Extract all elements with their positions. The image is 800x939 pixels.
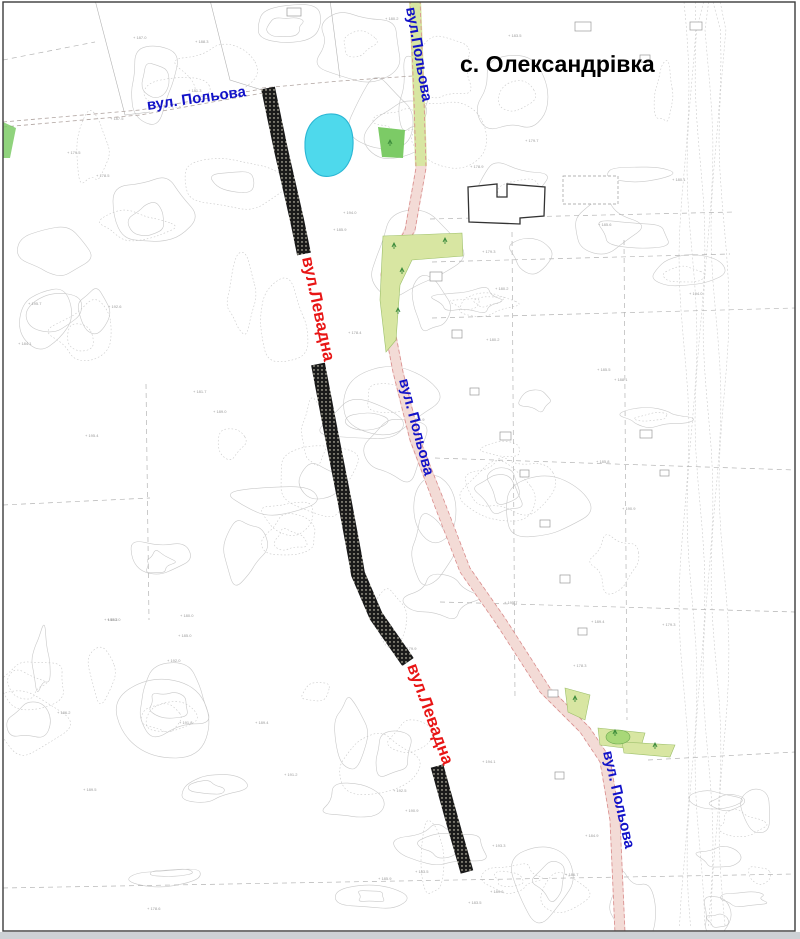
spot-height-mark: + 192.5 [393,788,407,793]
building [560,575,570,583]
contour-line [721,892,767,907]
contour-line [345,413,388,430]
parcel-line [432,308,795,318]
contour-line [146,550,175,572]
contour-line [335,697,368,769]
contour-line [78,289,110,334]
spot-height-mark: + 191.2 [284,772,298,777]
spot-height-mark: + 193.3 [492,843,506,848]
contour-line [140,663,209,737]
contour-line [116,679,209,758]
contour-line [317,13,400,82]
contour-line [32,625,50,692]
contour-line [261,502,312,535]
contour-line [0,691,71,755]
spot-height-mark: + 183.5 [508,33,522,38]
contour-line [261,514,315,555]
spot-height-mark: + 178.4 [348,330,362,335]
contour-line [654,61,673,122]
spot-height-mark: + 181.7 [193,389,207,394]
parcel-line [624,240,627,720]
contour-line [511,847,573,923]
spot-height-mark: + 189.0 [213,409,227,414]
contour-line [653,255,725,286]
tree-cluster [606,730,630,744]
spot-height-mark: + 179.3 [662,622,676,627]
contour-line [267,18,304,37]
contour-line [302,683,329,701]
spot-height-mark: + 188.3 [195,39,209,44]
spot-height-mark: + 189.4 [255,720,269,725]
parcel-line [95,0,150,115]
spot-height-mark: + 194.1 [482,759,496,764]
spot-height-mark: + 178.6 [147,906,161,911]
spot-height-mark: + 180.2 [385,16,399,21]
contour-line [663,266,705,282]
spot-height-mark: + 179.3 [482,249,496,254]
building [578,628,587,635]
building [555,772,564,779]
map-title: с. Олександрівка [460,51,655,77]
spot-height-mark: + 194.0 [343,210,357,215]
building [540,520,550,527]
contour-line [711,2,721,926]
field-road-edge [262,76,413,88]
building [520,470,529,477]
contour-line [741,789,770,833]
contour-line [498,81,535,111]
spot-height-mark: + 185.9 [378,876,392,881]
contour-line [224,521,268,586]
contour-line [620,407,694,427]
spot-height-mark: + 178.3 [573,663,587,668]
street-label-polova-middle: вул. Польова [395,377,437,478]
pond [305,114,353,176]
spot-height-mark: + 179.5 [67,150,81,155]
building [500,432,511,440]
spot-height-mark: + 190.9 [622,506,636,511]
contour-line [519,390,551,412]
contour-line [460,293,520,317]
spot-height-mark: + 184.1 [18,341,32,346]
contour-line [185,158,288,209]
spot-height-mark: + 185.6 [598,222,612,227]
contour-line [182,775,248,803]
cadastral-map: + 185.8+ 189.4+ 195.7+ 191.8+ 195.4+ 188… [0,0,800,939]
spot-height-mark: + 185.9 [333,227,347,232]
contour-line [26,293,82,331]
parcel-line [3,42,95,60]
contour-line [696,846,741,867]
parcel-line [330,0,340,78]
contour-line [465,458,555,515]
contour-line [507,476,591,537]
building [452,330,462,338]
contour-line [532,861,564,901]
building [575,22,591,31]
parcel-line [435,458,795,470]
street-label-polova-top-center: вул.Польова [402,6,435,104]
parcel-line [3,874,795,888]
spot-height-mark: + 183.5 [468,900,482,905]
parcel-line [146,384,149,620]
contour-line [541,872,590,912]
contour-line [142,63,169,97]
planned-road-segment [318,364,408,662]
contour-line [719,2,729,926]
contour-line [131,542,190,574]
contour-line [100,210,176,241]
contour-line [432,287,502,312]
contour-line [113,178,195,242]
spot-height-mark: + 191.8 [179,720,193,725]
spot-height-mark: + 180.1 [672,177,686,182]
contour-line [211,172,253,193]
spot-height-mark: + 184.9 [585,833,599,838]
spot-height-mark: + 180.2 [486,337,500,342]
contour-line [703,2,713,926]
building [548,690,558,697]
spot-height-mark: + 188.1 [614,377,628,382]
contour-line [227,252,256,334]
contour-line [188,781,224,795]
contour-line [335,885,407,908]
parcel-line [210,0,262,90]
spot-height-mark: + 195.7 [28,301,42,306]
contour-line [687,2,697,926]
contour-line [394,824,487,864]
building [470,388,479,395]
contour-line [344,367,440,435]
contour-line [749,867,771,885]
spot-height-mark: + 179.7 [525,138,539,143]
contour-line [218,429,246,460]
contour-line [475,475,523,514]
spot-height-mark: + 180.2 [495,286,509,291]
vegetation-area [3,122,16,158]
building [563,176,618,204]
building-outline [468,184,545,224]
street-label-polova-bottom-right: вул. Польова [599,749,638,851]
spot-height-mark: + 186.2 [57,710,71,715]
contour-line [8,670,47,699]
spot-height-mark: + 192.6 [108,304,122,309]
window-bottom-edge [0,932,800,939]
map-canvas: + 185.8+ 189.4+ 195.7+ 191.8+ 195.4+ 188… [0,0,800,939]
building [430,272,442,281]
contour-line [450,299,479,310]
spot-height-mark: + 183.5 [415,869,429,874]
spot-height-mark: + 185.5 [597,367,611,372]
contour-line [358,891,383,902]
contour-line [679,2,689,926]
contour-line [510,238,553,274]
spot-height-mark: + 194.0 [689,291,703,296]
road-polova [381,0,625,933]
contour-line [261,278,308,362]
spot-height-mark: + 195.4 [85,433,99,438]
spot-height-mark: + 185.0 [178,633,192,638]
spot-height-mark: + 178.5 [96,173,110,178]
building [660,470,669,476]
spot-height-mark: + 189.4 [591,619,605,624]
spot-height-mark: + 189.6 [490,889,504,894]
spot-height-mark: + 180.2 [104,617,118,622]
vegetation-area-light [380,233,463,352]
contour-line [344,31,377,57]
spot-height-mark: + 178.9 [470,164,484,169]
contour-line [230,487,317,515]
contour-line [695,2,705,926]
contour-line [323,783,384,817]
contour-line [707,914,729,927]
parcel-line [3,498,150,505]
spot-height-mark: + 192.0 [167,658,181,663]
vegetation-area-light [622,742,675,757]
contour-line [129,869,201,887]
contour-line [88,647,115,704]
contour-line [340,733,420,794]
spot-height-mark: + 189.5 [83,787,97,792]
contour-line [150,693,188,719]
spot-height-mark: + 190.9 [405,808,419,813]
parcel-line [432,254,730,262]
contour-line [709,794,744,810]
spot-height-mark: + 186.7 [565,872,579,877]
street-label-levadna-upper: вул.Левадна [298,255,339,364]
contour-line [590,535,639,594]
building [287,8,301,16]
spot-height-mark: + 180.0 [180,613,194,618]
contour-line [412,275,450,331]
contour-line [1,662,63,710]
building [690,22,702,30]
contour-line [376,731,411,776]
contour-line [68,324,94,351]
building [640,430,652,438]
contour-line [474,297,505,307]
contour-line [689,791,742,809]
contour-line [634,412,667,421]
spot-height-mark: + 187.0 [133,35,147,40]
contour-line [17,227,91,276]
planned-road-segment [268,88,304,254]
